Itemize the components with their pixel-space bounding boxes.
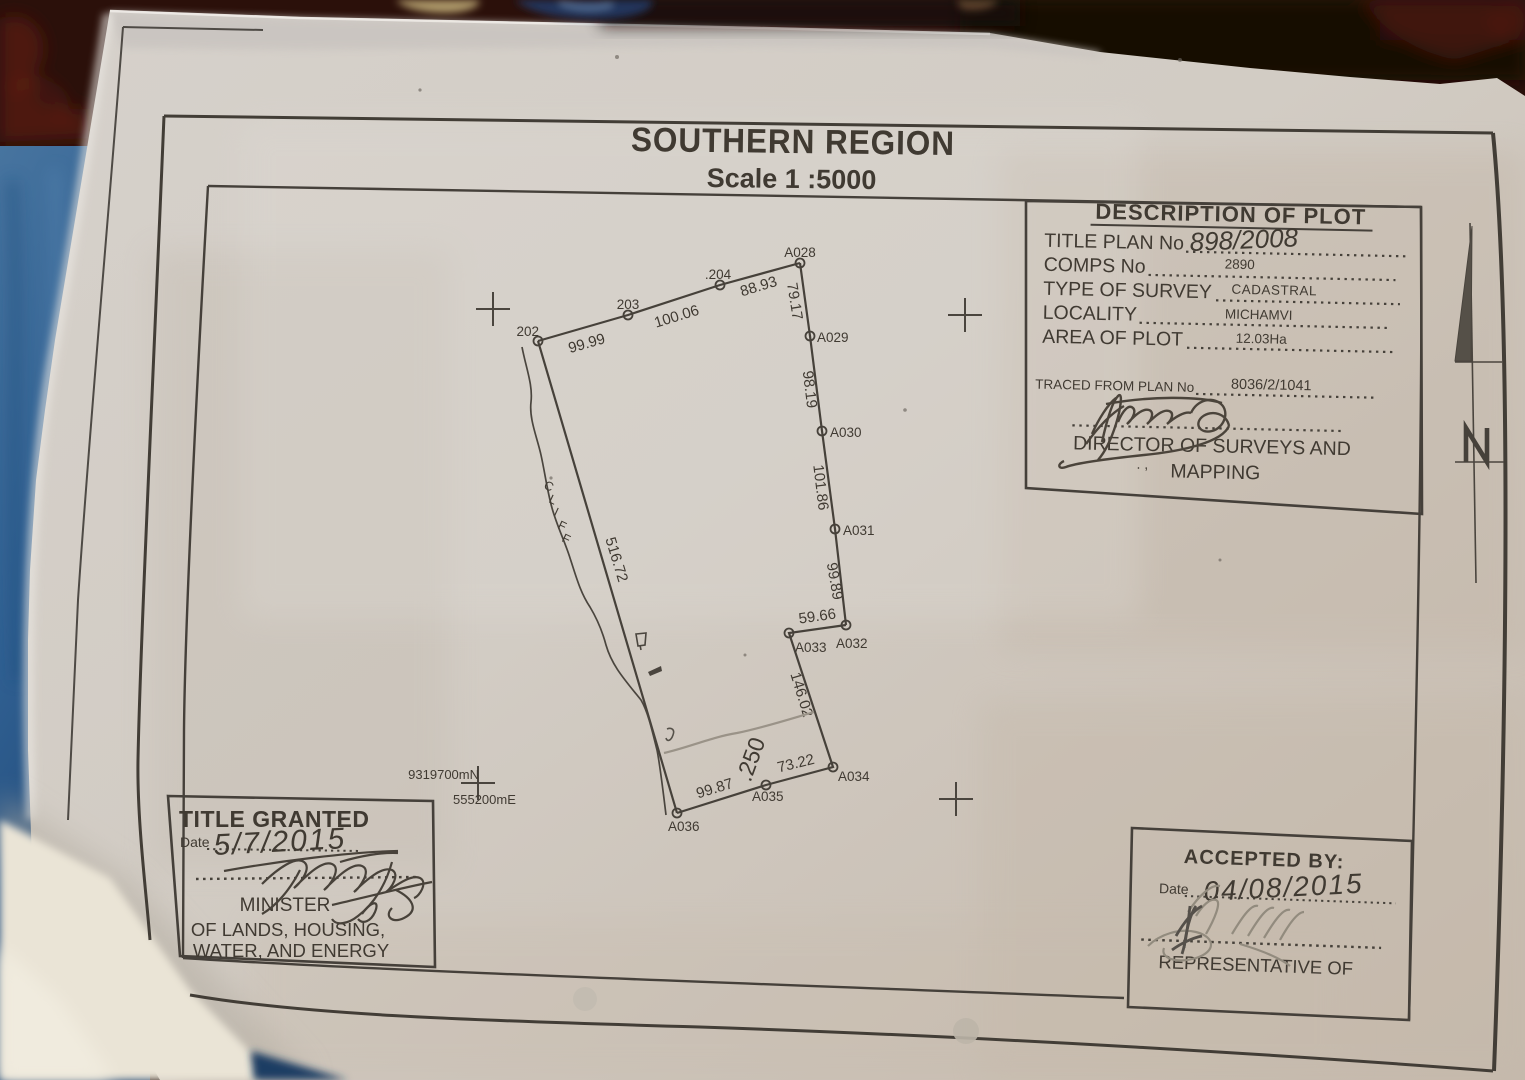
svg-text:A030: A030 [830, 425, 862, 440]
svg-text:12.03Ha: 12.03Ha [1236, 331, 1288, 347]
svg-text:A031: A031 [843, 523, 875, 538]
svg-text:A034: A034 [838, 769, 870, 784]
svg-text:MICHAMVI: MICHAMVI [1225, 307, 1293, 323]
svg-text:A035: A035 [752, 789, 784, 804]
svg-text:AREA OF PLOT: AREA OF PLOT [1042, 326, 1183, 351]
svg-text:MAPPING: MAPPING [1170, 460, 1260, 484]
svg-text:202: 202 [516, 324, 539, 339]
svg-text:A029: A029 [817, 330, 849, 345]
svg-text:Date: Date [1159, 880, 1189, 897]
svg-text:MINISTER: MINISTER [240, 895, 331, 916]
svg-text:.204: .204 [705, 267, 732, 282]
svg-text:8036/2/1041: 8036/2/1041 [1231, 377, 1312, 395]
svg-text:A033: A033 [795, 640, 827, 655]
svg-text:COMPS No: COMPS No [1043, 254, 1145, 278]
svg-text:9319700mN: 9319700mN [408, 767, 479, 782]
svg-text:WATER, AND ENERGY: WATER, AND ENERGY [193, 940, 389, 961]
svg-text:Date: Date [180, 834, 210, 850]
svg-text:TITLE PLAN No: TITLE PLAN No [1044, 230, 1184, 255]
svg-text:TYPE OF SURVEY: TYPE OF SURVEY [1043, 278, 1212, 304]
svg-text:A032: A032 [836, 636, 868, 651]
svg-text:898/2008: 898/2008 [1189, 222, 1299, 257]
svg-text:555200mE: 555200mE [453, 792, 516, 807]
svg-text:A028: A028 [784, 245, 816, 260]
svg-text:. ,: . , [1136, 456, 1148, 472]
svg-text:SOUTHERN REGION: SOUTHERN REGION [631, 121, 955, 163]
svg-text:CADASTRAL: CADASTRAL [1231, 282, 1317, 299]
svg-text:OF LANDS, HOUSING,: OF LANDS, HOUSING, [191, 919, 385, 940]
svg-text:Scale 1 :5000: Scale 1 :5000 [707, 163, 877, 195]
svg-text:203: 203 [617, 297, 640, 312]
svg-text:2890: 2890 [1225, 257, 1255, 273]
svg-text:A036: A036 [668, 819, 700, 834]
svg-text:LOCALITY: LOCALITY [1042, 302, 1137, 326]
